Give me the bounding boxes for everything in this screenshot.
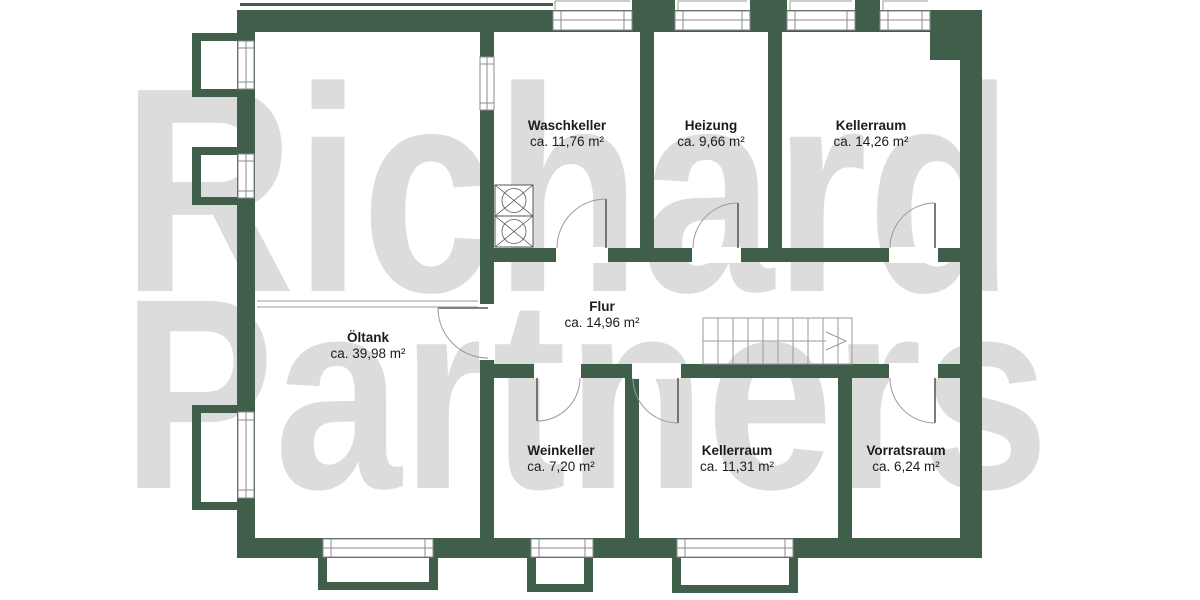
wall-segment bbox=[640, 26, 654, 262]
room-area: ca. 11,31 m² bbox=[700, 459, 774, 475]
room-name: Kellerraum bbox=[833, 118, 908, 134]
floorplan: Richard Partners bbox=[0, 0, 1200, 600]
room-area: ca. 14,26 m² bbox=[833, 134, 908, 150]
room-label-oeltank: Öltank ca. 39,98 m² bbox=[330, 330, 405, 361]
room-name: Weinkeller bbox=[527, 443, 595, 459]
room-area: ca. 11,76 m² bbox=[528, 134, 606, 150]
room-area: ca. 6,24 m² bbox=[866, 459, 945, 475]
room-name: Öltank bbox=[330, 330, 405, 346]
washing-machine-icon bbox=[495, 185, 533, 247]
room-area: ca. 7,20 m² bbox=[527, 459, 595, 475]
wall-segment bbox=[838, 372, 852, 544]
wall-segment bbox=[960, 10, 982, 558]
room-name: Vorratsraum bbox=[866, 443, 945, 459]
room-area: ca. 39,98 m² bbox=[330, 346, 405, 362]
wall-ledge bbox=[240, 3, 553, 6]
wall-segment bbox=[930, 10, 962, 60]
room-area: ca. 9,66 m² bbox=[677, 134, 745, 150]
room-label-waschkeller: Waschkeller ca. 11,76 m² bbox=[528, 118, 606, 149]
room-area: ca. 14,96 m² bbox=[564, 315, 639, 331]
light-well bbox=[192, 0, 928, 593]
beam-line bbox=[257, 301, 478, 307]
room-label-kellerraum-unten: Kellerraum ca. 11,31 m² bbox=[700, 443, 774, 474]
room-name: Flur bbox=[564, 299, 639, 315]
room-name: Kellerraum bbox=[700, 443, 774, 459]
wall-segment bbox=[768, 26, 782, 262]
room-label-kellerraum-oben: Kellerraum ca. 14,26 m² bbox=[833, 118, 908, 149]
exterior-walls bbox=[237, 3, 982, 558]
room-name: Waschkeller bbox=[528, 118, 606, 134]
window-icon bbox=[238, 11, 930, 557]
room-label-vorratsraum: Vorratsraum ca. 6,24 m² bbox=[866, 443, 945, 474]
room-label-flur: Flur ca. 14,96 m² bbox=[564, 299, 639, 330]
room-label-heizung: Heizung ca. 9,66 m² bbox=[677, 118, 745, 149]
room-name: Heizung bbox=[677, 118, 745, 134]
stairs-icon bbox=[703, 318, 852, 364]
room-label-weinkeller: Weinkeller ca. 7,20 m² bbox=[527, 443, 595, 474]
